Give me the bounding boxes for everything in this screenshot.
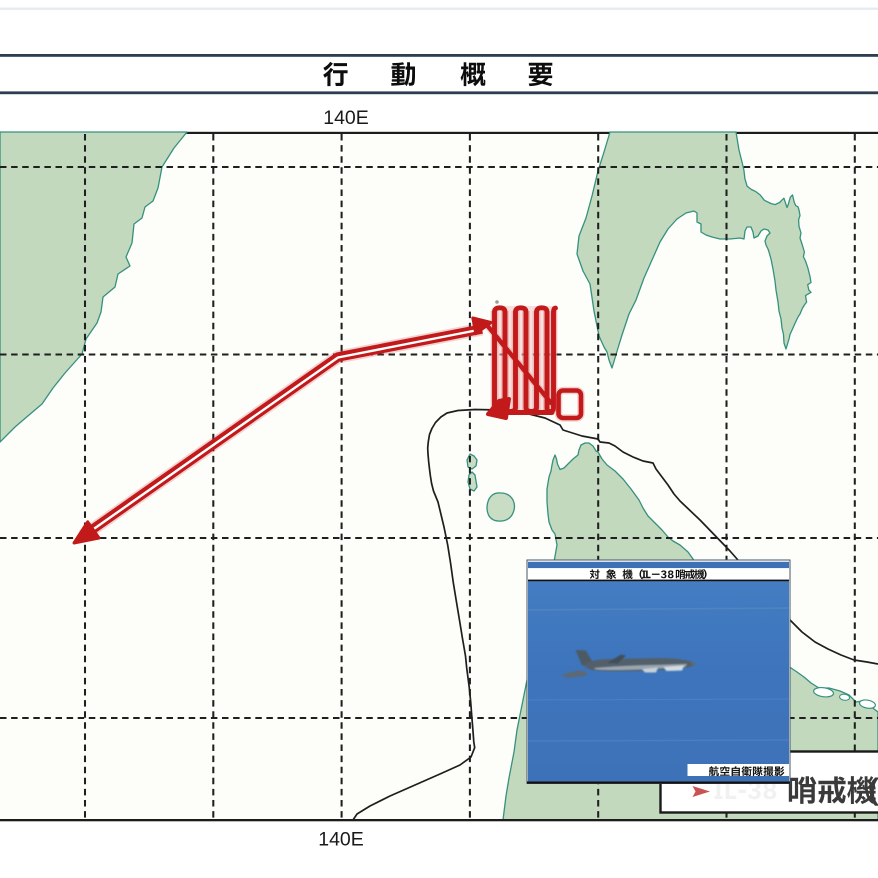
svg-text:140E: 140E	[323, 107, 369, 129]
svg-text:140E: 140E	[318, 829, 364, 851]
